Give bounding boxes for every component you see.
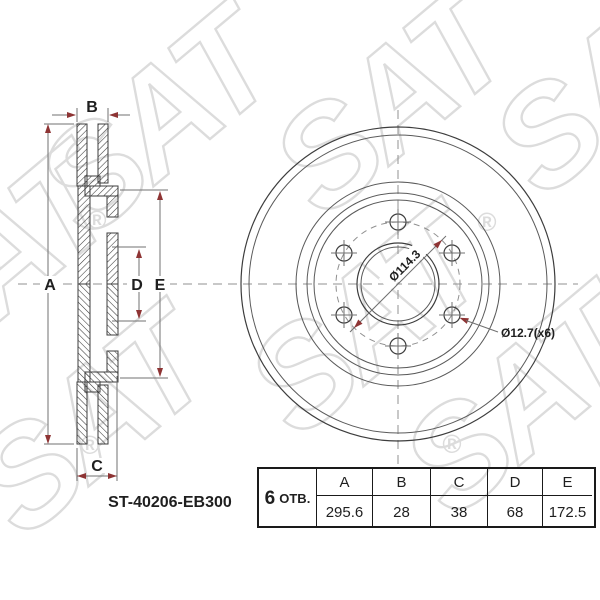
holes-count: 6 [265,488,276,510]
registered-mark-icon: ® [477,207,496,237]
holes-count-cell: 6 ОТВ. [259,469,316,528]
col-header-b: B [372,469,430,495]
dim-label-b: B [86,99,98,116]
col-header-e: E [542,469,592,495]
col-header-c: C [430,469,487,495]
value-d: 68 [487,495,542,528]
holes-label: ОТВ. [279,491,310,506]
hat-wall-section [107,196,118,217]
part-number-label: ST-40206-EB300 [100,494,240,512]
col-header-d: D [487,469,542,495]
dim-label-d: D [131,277,143,294]
inboard-plate-section [98,124,108,183]
spec-table: 6 ОТВ. A B C D E 295.6 28 38 68 172.5 [257,467,596,528]
bolt-hole-dia-label: Ø12.7(x6) [501,326,555,340]
value-c: 38 [430,495,487,528]
col-header-a: A [316,469,372,495]
value-e: 172.5 [542,495,592,528]
value-b: 28 [372,495,430,528]
brake-disc-diagram-page: { "part_number": "ST-40206-EB300", "sect… [0,0,600,600]
dim-label-e: E [155,277,166,294]
dim-label-a: A [44,277,56,294]
value-a: 295.6 [316,495,372,528]
hat-wall-section [107,233,118,284]
vent-vane-section [85,176,100,186]
hat-face-section [78,186,90,284]
dim-label-c: C [91,458,103,475]
